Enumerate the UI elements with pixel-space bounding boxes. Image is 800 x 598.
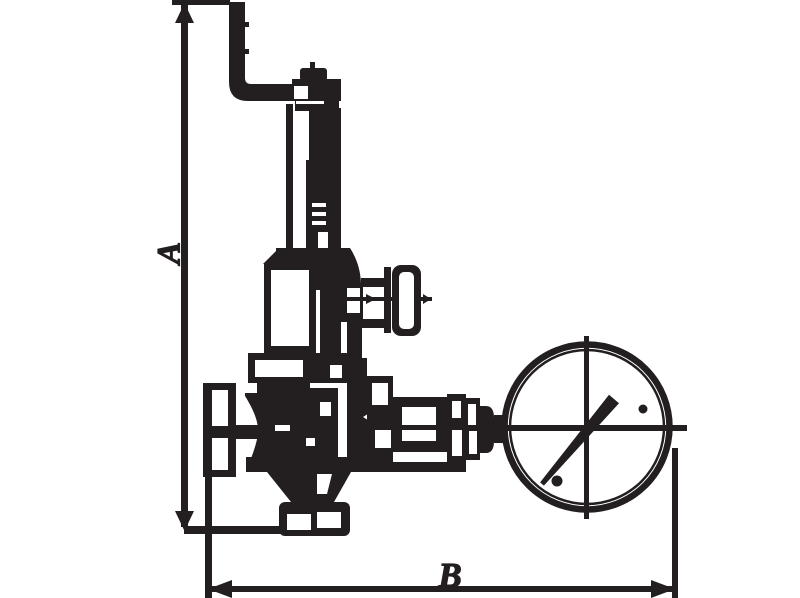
- svg-text:A: A: [152, 242, 188, 266]
- svg-text:B: B: [437, 556, 461, 595]
